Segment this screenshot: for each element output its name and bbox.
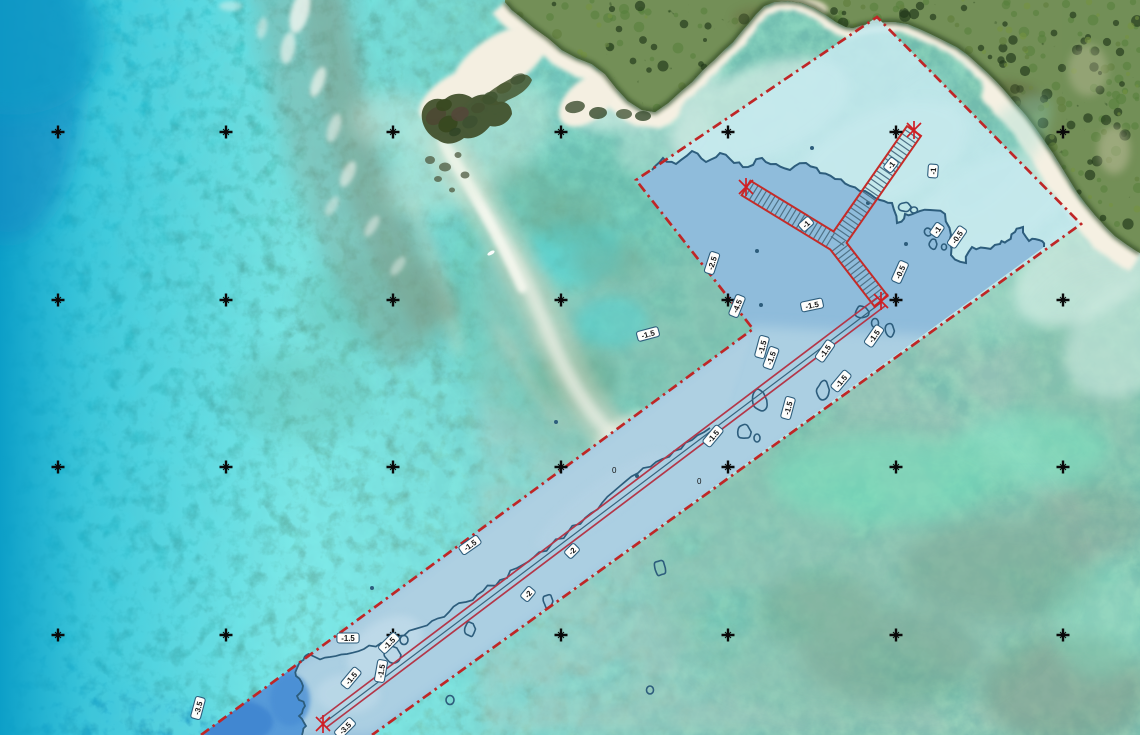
svg-text:0: 0 <box>697 477 702 486</box>
svg-text:-1: -1 <box>929 167 939 175</box>
svg-text:-1.5: -1.5 <box>341 634 355 643</box>
svg-text:0: 0 <box>612 466 617 475</box>
